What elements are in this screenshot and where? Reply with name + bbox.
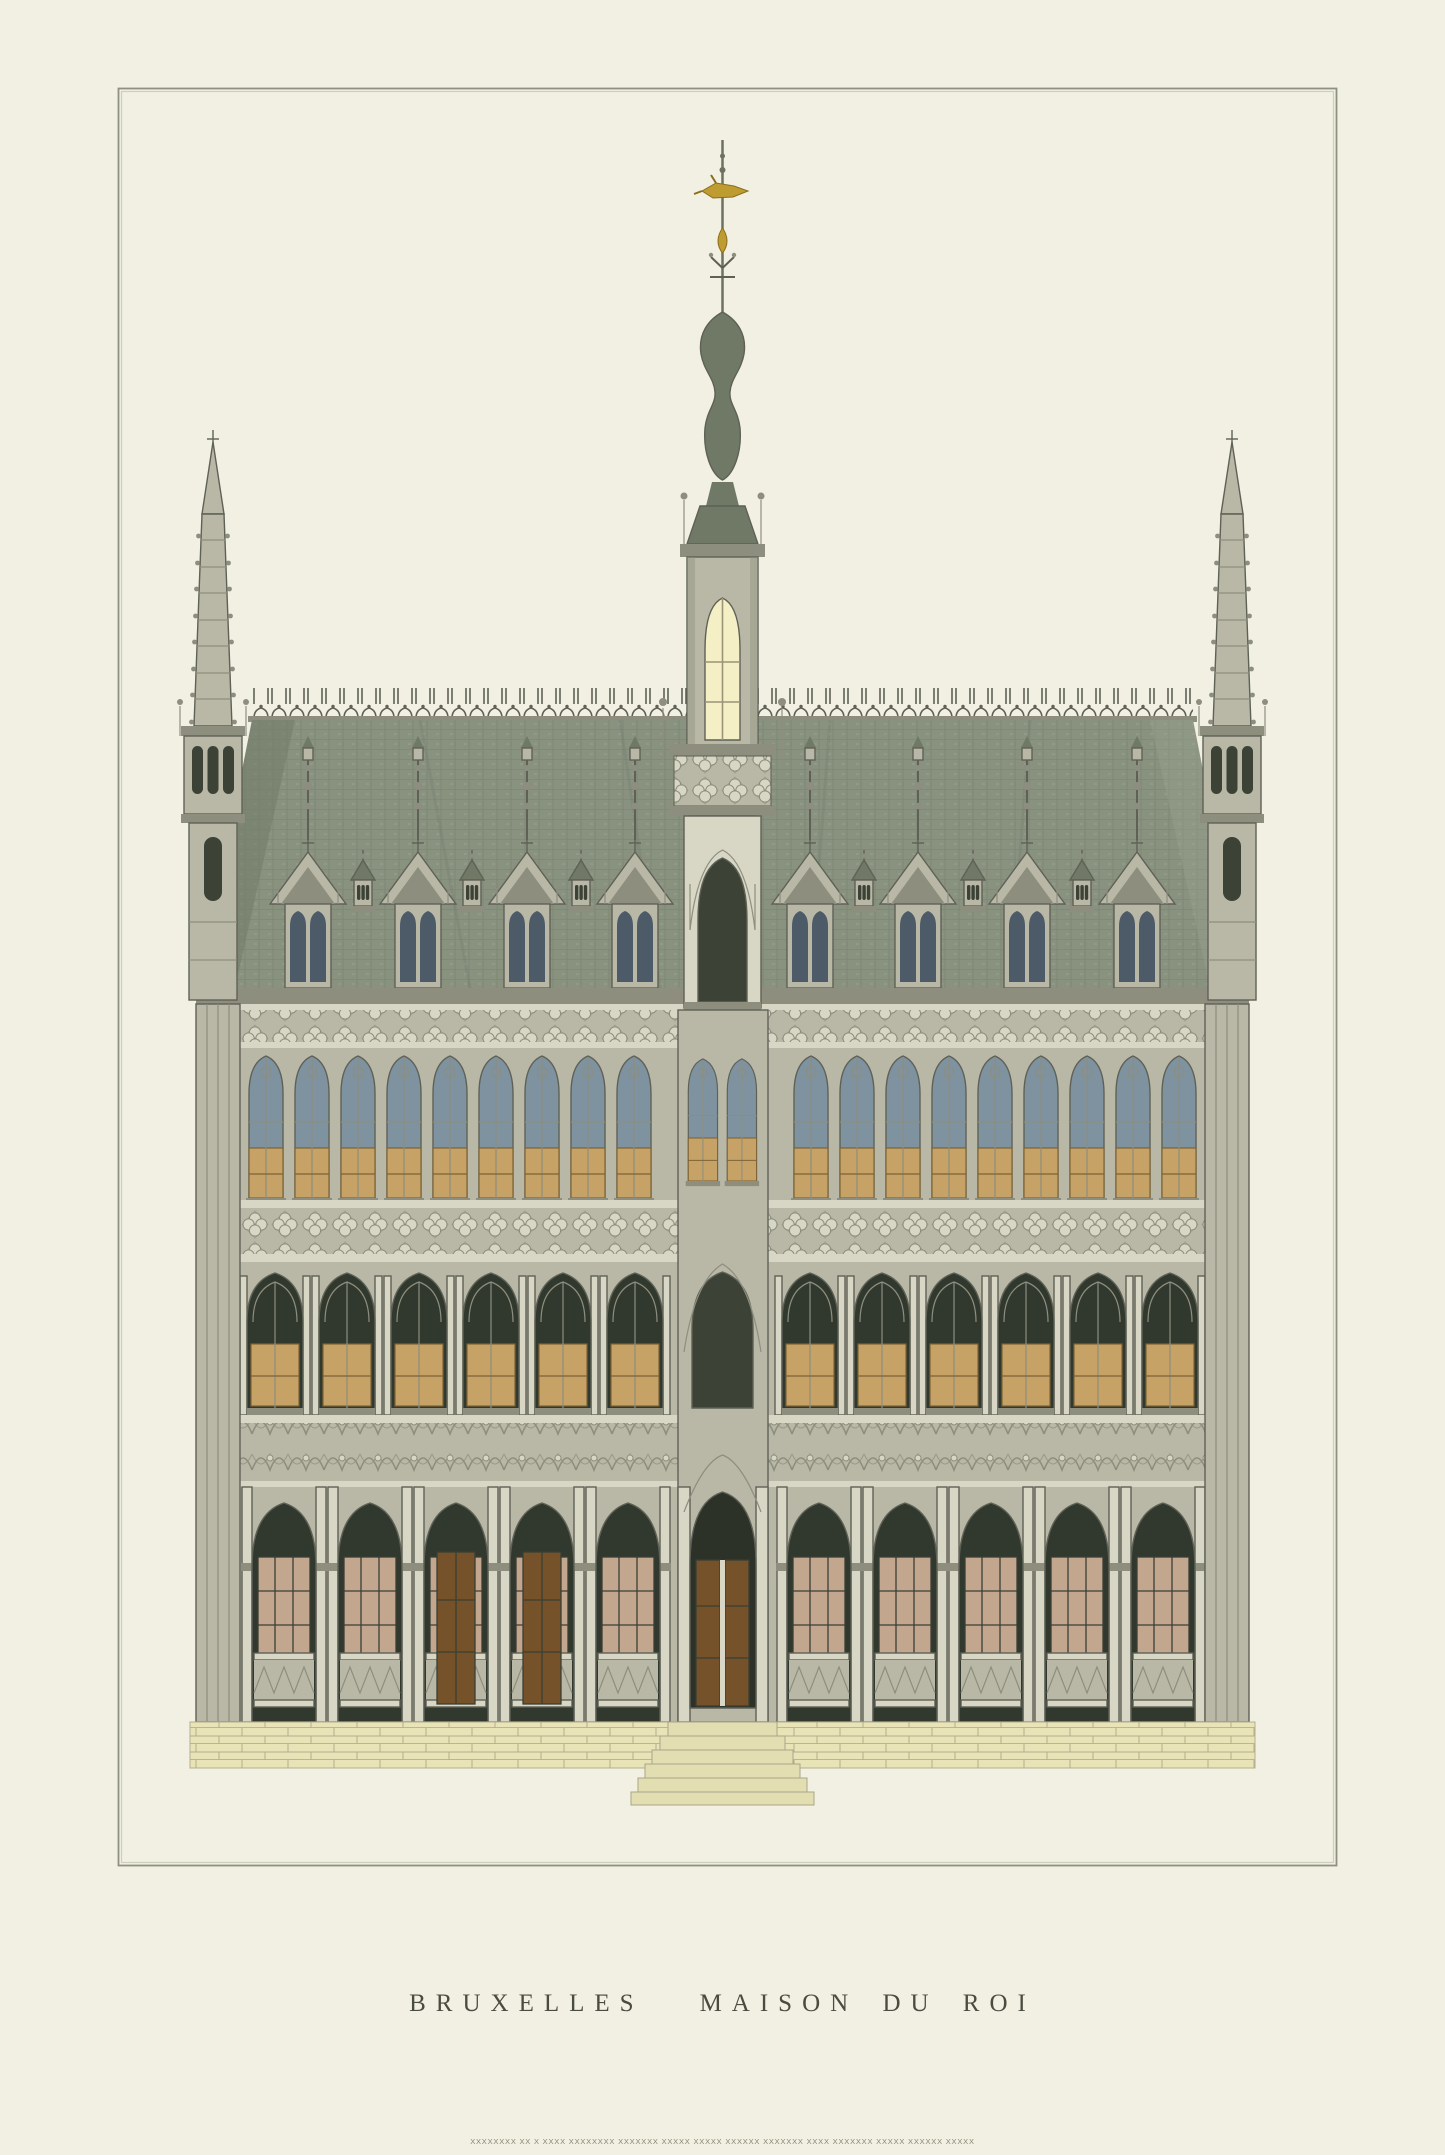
central-bay xyxy=(678,1010,768,1722)
fine-print-illegible: XXXXXXXX XX X XXXX XXXXXXXX XXXXXXX XXXX… xyxy=(443,2137,1003,2155)
print-caption: BRUXELLES MAISON DU ROI xyxy=(0,1990,1445,2018)
art-print-poster: BRUXELLES MAISON DU ROI XXXXXXXX XX X XX… xyxy=(0,0,1445,2155)
main-portal xyxy=(678,1455,768,1722)
caption-title: MAISON DU ROI xyxy=(700,1990,1036,2018)
caption-city: BRUXELLES xyxy=(409,1990,643,2018)
tower-niche xyxy=(684,816,761,1010)
building-illustration xyxy=(0,0,1445,2155)
